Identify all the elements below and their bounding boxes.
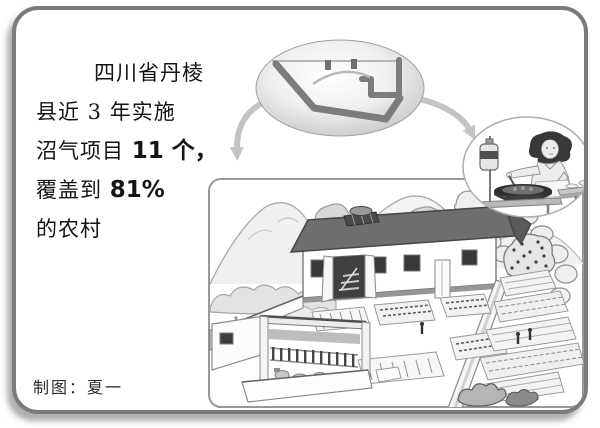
door-leaf xyxy=(322,256,333,302)
intro-line-text: 县近 3 年实施 xyxy=(36,100,176,124)
intro-line-text: 沼气项目 xyxy=(36,139,132,163)
intro-line-text: 四川省丹棱 xyxy=(94,61,204,85)
intro-line-number: 11 个， xyxy=(132,138,218,164)
intro-line-text: 的农村 xyxy=(36,217,102,241)
credit-label: 制图：夏一 xyxy=(33,374,123,398)
intro-line-text: 覆盖到 xyxy=(36,178,110,202)
intro-line-number: 81% xyxy=(110,177,165,203)
gas-pipe xyxy=(351,59,357,69)
infographic-frame: 四川省丹棱 县近 3 年实施 沼气项目 11 个， 覆盖到 81% 的农村 xyxy=(12,6,588,414)
door-leaf xyxy=(365,255,376,298)
biogas-pit-diagram: 沼气池 xyxy=(250,38,426,63)
inlet-pipe xyxy=(325,60,331,70)
doorway xyxy=(322,255,376,302)
cooking-inset-illustration xyxy=(460,114,588,220)
biogas-pit-icon xyxy=(250,38,426,140)
